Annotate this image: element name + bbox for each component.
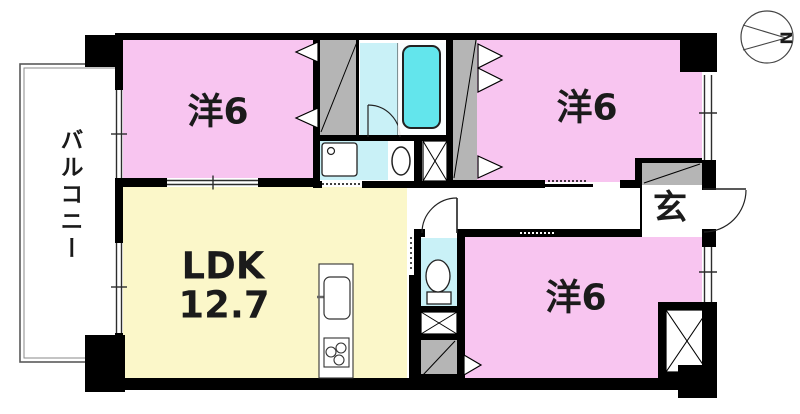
label-ldk-area: 12.7 bbox=[178, 284, 269, 327]
washbasin-faucet bbox=[328, 148, 335, 155]
wall-right-1 bbox=[702, 160, 716, 190]
toilet bbox=[426, 260, 451, 304]
label-ldk: LDK bbox=[182, 245, 266, 288]
wall-hall-top-slider bbox=[545, 184, 593, 187]
wall-hall-top-a bbox=[453, 180, 545, 188]
kitchen bbox=[317, 264, 353, 378]
pillar-top-right bbox=[680, 33, 717, 72]
entrance-step-line bbox=[640, 186, 642, 232]
washing-machine bbox=[392, 147, 410, 175]
ldk-floor bbox=[123, 187, 407, 378]
wall-left-2 bbox=[115, 178, 123, 243]
floor-plan: 洋6 洋6 洋6 LDK 12.7 玄 N バルコニー bbox=[0, 0, 800, 414]
wall-top bbox=[115, 33, 717, 40]
kitchen-sink bbox=[324, 277, 350, 319]
pillar-bottom-right bbox=[678, 365, 717, 398]
wall-bath-washroom bbox=[320, 135, 453, 141]
bathtub bbox=[403, 46, 440, 128]
wall-san-column-left2 bbox=[409, 275, 421, 390]
label-bedroom-top-left: 洋6 bbox=[187, 92, 248, 133]
label-bedroom-bottom-right: 洋6 bbox=[545, 278, 606, 319]
wall-shoe-top bbox=[635, 158, 702, 163]
washbasin bbox=[322, 143, 357, 176]
label-balcony: バルコニー bbox=[52, 128, 86, 263]
label-bedroom-top-right: 洋6 bbox=[556, 88, 617, 129]
compass-north-label: N bbox=[777, 31, 796, 44]
wall-toilet-ps bbox=[414, 306, 465, 312]
wall-washer-ps bbox=[414, 140, 422, 188]
toilet-tank bbox=[427, 292, 451, 304]
wall-ps-closet bbox=[414, 334, 465, 340]
toilet-bowl bbox=[426, 260, 450, 292]
wall-closet-bath bbox=[356, 40, 359, 137]
wall-closet-bottom bbox=[414, 374, 465, 379]
label-entrance: 玄 bbox=[653, 188, 687, 228]
wall-washblock-bottom-b bbox=[362, 181, 453, 188]
floor-plan-canvas: 洋6 洋6 洋6 LDK 12.7 玄 N bbox=[0, 0, 800, 414]
pillar-bottom-left bbox=[85, 335, 125, 392]
pillar-top-left bbox=[85, 35, 118, 67]
